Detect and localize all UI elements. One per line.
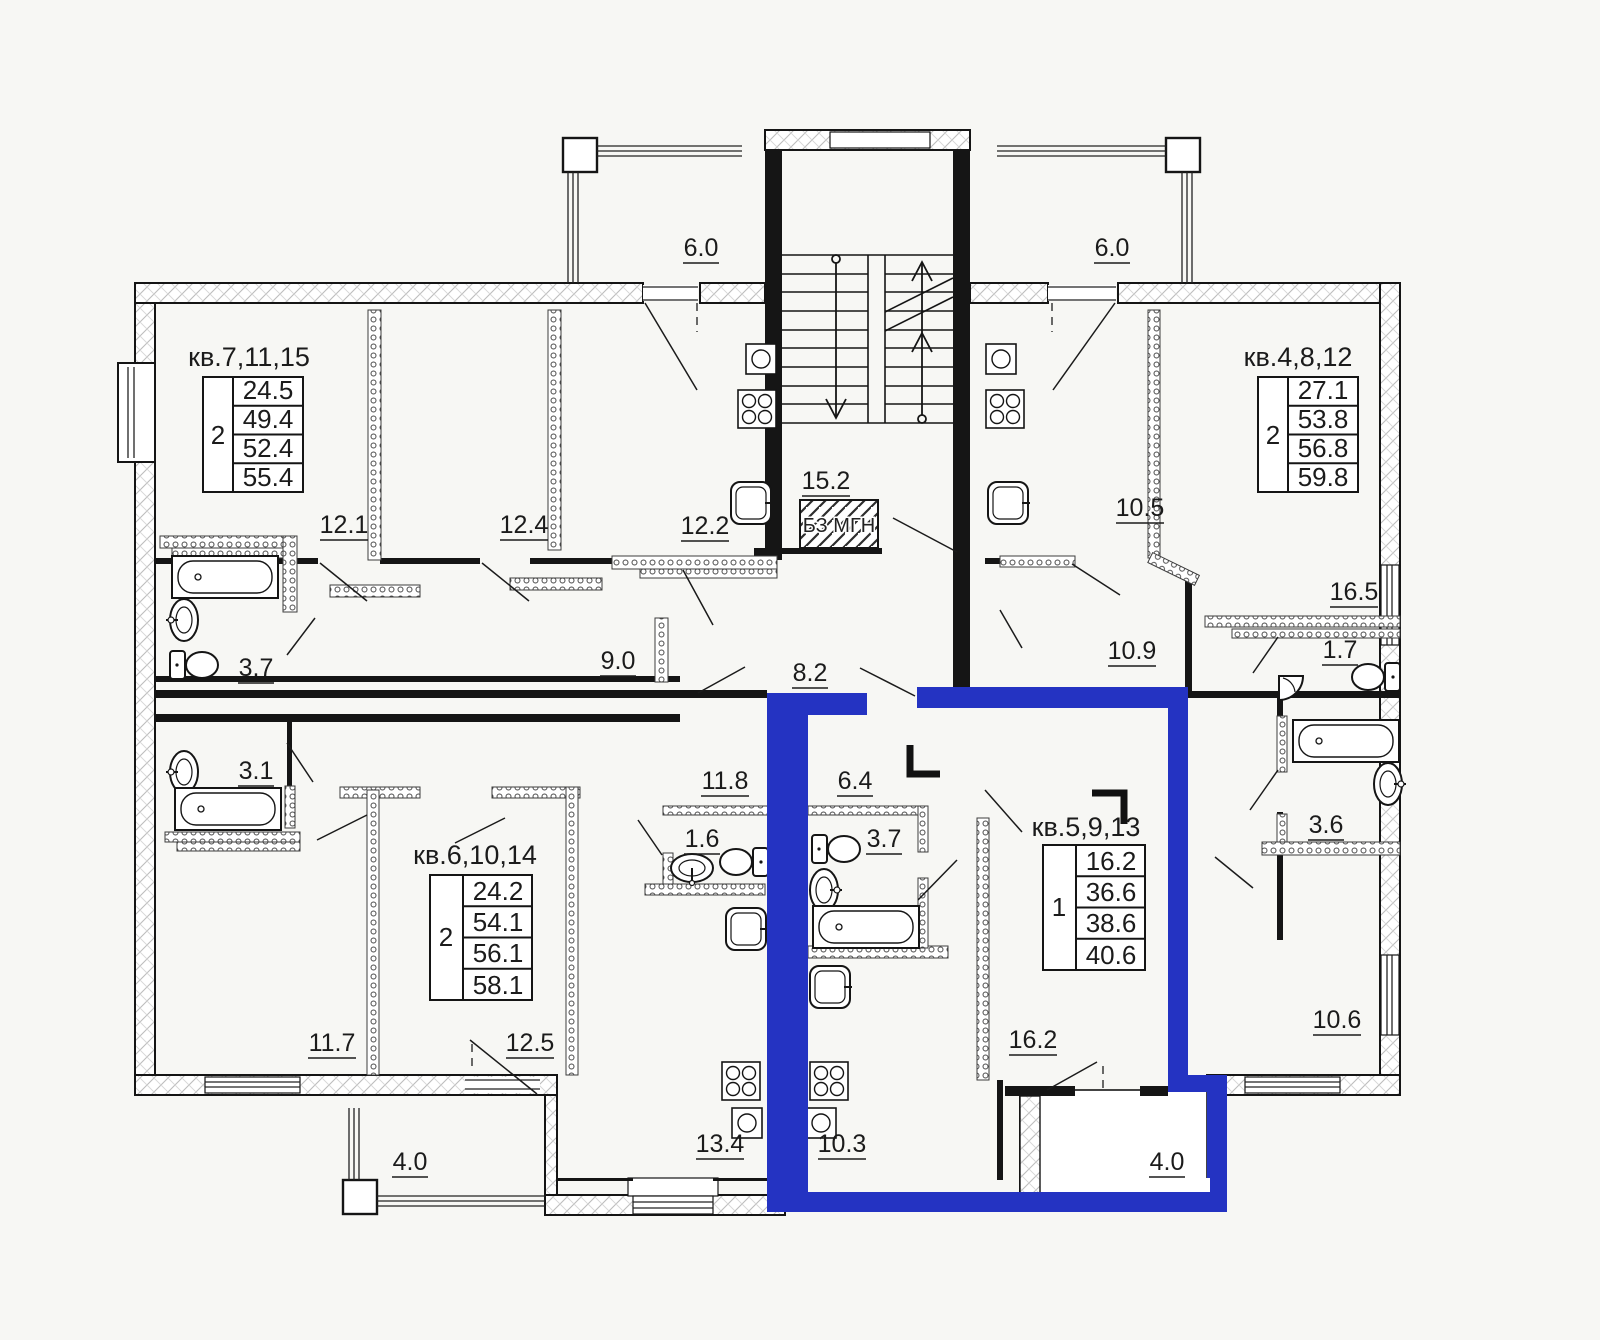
window-protrusion — [628, 1178, 718, 1214]
apartment-table-kv6[interactable]: кв.6,10,14 2 24.2 54.1 56.1 58.1 — [413, 840, 537, 1000]
room-label: 16.2 — [1009, 1026, 1058, 1054]
room-label: 9.0 — [601, 647, 636, 675]
room-label: 11.7 — [309, 1029, 356, 1057]
area-value: 59.8 — [1298, 462, 1349, 492]
room-count: 2 — [1266, 420, 1280, 450]
apartment-title: кв.6,10,14 — [413, 840, 537, 870]
room-label: 13.4 — [696, 1130, 745, 1158]
room-label: 6.0 — [1095, 234, 1130, 262]
window-bottom-left — [205, 1077, 300, 1093]
room-label: 4.0 — [393, 1148, 428, 1176]
balcony-door-bottom-left — [465, 1077, 540, 1093]
room-label: 4.0 — [1150, 1148, 1185, 1176]
apartment-table-kv5[interactable]: кв.5,9,13 1 16.2 36.6 38.6 40.6 — [1032, 812, 1145, 970]
apartment-title: кв.5,9,13 — [1032, 812, 1141, 842]
balcony-door-top-left — [643, 285, 698, 301]
area-value: 27.1 — [1298, 375, 1349, 405]
apartment-title: кв.7,11,15 — [188, 342, 310, 372]
room-label: 12.4 — [500, 511, 549, 539]
kitchen-sink — [746, 344, 776, 374]
stove — [722, 1062, 760, 1100]
area-value: 40.6 — [1086, 940, 1137, 970]
basin — [726, 908, 768, 950]
balcony-door-top-right — [1048, 285, 1116, 301]
balcony-bottom-right — [1020, 1090, 1207, 1195]
room-label: 10.5 — [1116, 494, 1165, 522]
room-label: 3.7 — [867, 825, 902, 853]
room-label: 1.6 — [685, 825, 720, 853]
window-right-lower — [1381, 955, 1399, 1035]
apartment-table-kv4[interactable]: кв.4,8,12 2 27.1 53.8 56.8 59.8 — [1244, 342, 1358, 492]
room-label: 10.9 — [1108, 637, 1157, 665]
room-label: 1.7 — [1323, 636, 1358, 664]
room-label: 3.6 — [1309, 811, 1344, 839]
window-bay-left — [118, 363, 155, 462]
room-label: 12.2 — [681, 512, 730, 540]
area-value: 38.6 — [1086, 908, 1137, 938]
room-label: 15.2 — [802, 467, 851, 495]
area-value: 24.5 — [243, 375, 294, 405]
area-value: 24.2 — [473, 876, 524, 906]
area-value: 56.8 — [1298, 433, 1349, 463]
basin — [731, 482, 773, 524]
bathtub — [172, 556, 278, 598]
window-bottom-right — [1245, 1077, 1340, 1093]
floor-plan-page: 6.0 6.0 12.1 12.4 12.2 15.2 10.5 16.5 3.… — [0, 0, 1600, 1340]
basin — [810, 966, 852, 1008]
basin — [988, 482, 1030, 524]
room-label: 16.5 — [1330, 578, 1379, 606]
room-count: 1 — [1052, 892, 1066, 922]
room-label: 11.8 — [702, 767, 749, 795]
bathtub — [1293, 720, 1399, 762]
room-label: 12.5 — [506, 1029, 555, 1057]
room-count: 2 — [439, 922, 453, 952]
area-value: 55.4 — [243, 462, 294, 492]
area-value: 16.2 — [1086, 846, 1137, 876]
kitchen-sink — [986, 344, 1016, 374]
room-label: 6.4 — [838, 767, 873, 795]
stove — [738, 390, 776, 428]
room-label: 10.3 — [818, 1130, 867, 1158]
room-count: 2 — [211, 420, 225, 450]
toilet — [170, 651, 218, 679]
room-label: 3.1 — [239, 757, 274, 785]
bathtub — [813, 906, 919, 948]
apartment-table-kv7[interactable]: кв.7,11,15 2 24.5 49.4 52.4 55.4 — [188, 342, 310, 492]
safe-zone-label: БЗ МГН — [803, 515, 875, 537]
outline-notch — [1197, 1178, 1210, 1192]
room-label: 3.7 — [239, 654, 274, 682]
area-value: 54.1 — [473, 907, 524, 937]
apartment-title: кв.4,8,12 — [1244, 342, 1353, 372]
area-value: 58.1 — [473, 970, 524, 1000]
room-label: 12.1 — [320, 511, 369, 539]
floor-plan-drawing: 6.0 6.0 12.1 12.4 12.2 15.2 10.5 16.5 3.… — [0, 0, 1600, 1340]
bathtub — [175, 788, 281, 830]
toilet — [812, 835, 860, 863]
stove — [810, 1062, 848, 1100]
area-value: 36.6 — [1086, 877, 1137, 907]
area-value: 52.4 — [243, 433, 294, 463]
area-value: 56.1 — [473, 938, 524, 968]
stairwell-entrance-opening — [830, 132, 930, 148]
toilet — [720, 848, 768, 876]
room-label: 6.0 — [684, 234, 719, 262]
room-label: 10.6 — [1313, 1006, 1362, 1034]
area-value: 49.4 — [243, 404, 294, 434]
room-label: 8.2 — [793, 659, 828, 687]
toilet — [1352, 663, 1400, 691]
stove — [986, 390, 1024, 428]
area-value: 53.8 — [1298, 404, 1349, 434]
